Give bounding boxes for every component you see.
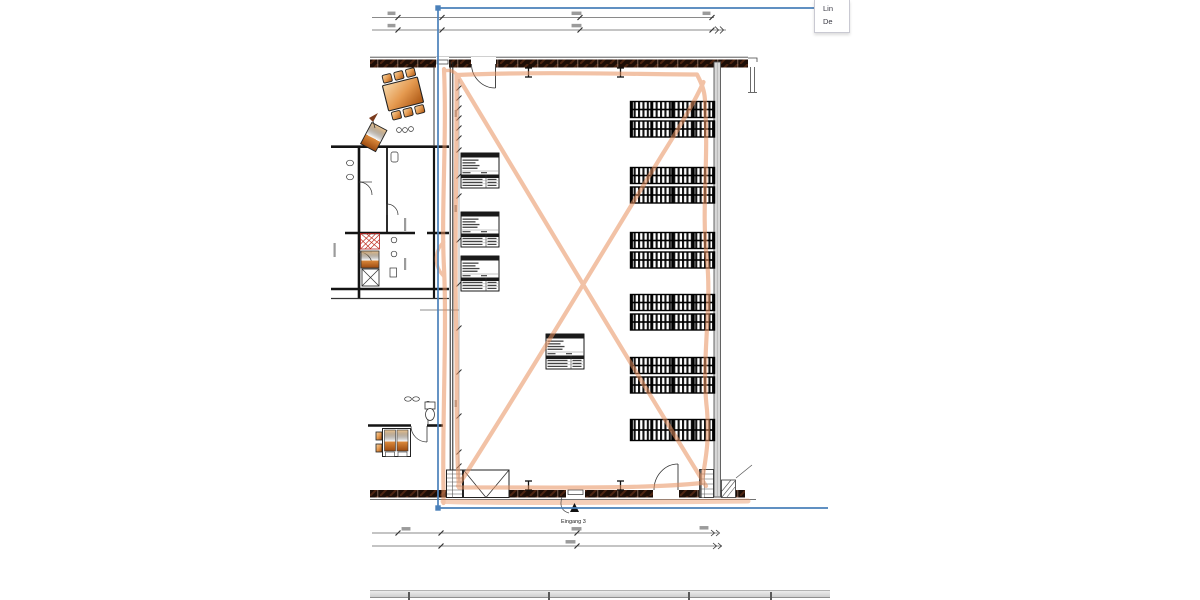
room-stamp: [461, 212, 499, 247]
counter-element: [361, 251, 379, 268]
table-header-bar[interactable]: [370, 590, 830, 598]
entrance-label: Eingang 3: [561, 519, 586, 525]
pallet-rack-group: [631, 233, 715, 269]
room-stamp: [461, 256, 499, 291]
context-panel-item[interactable]: Lin: [823, 2, 849, 15]
floorplan-canvas: Eingang 3: [0, 0, 1200, 600]
top-wall: [370, 60, 748, 68]
selection-handle-top[interactable]: [435, 5, 440, 10]
table-column-separator: [408, 592, 410, 600]
pallet-rack-group: [631, 358, 715, 394]
pallet-rack-group: [631, 295, 715, 331]
meeting-table: [380, 67, 426, 120]
column-marks: [525, 68, 624, 490]
room-stamp: [461, 153, 499, 188]
pallet-racks: [631, 102, 715, 441]
shaft-element: [362, 269, 379, 286]
app-viewport: Eingang 3 Lin De: [0, 0, 1200, 600]
table-column-separator: [770, 592, 772, 600]
context-panel-item[interactable]: De: [823, 15, 849, 28]
selection-handle-bottom[interactable]: [435, 505, 440, 510]
table-column-separator: [548, 592, 550, 600]
top-dimension-lines: [372, 12, 726, 34]
bottom-wall: [370, 490, 745, 498]
bottom-dimension-lines: [372, 527, 722, 550]
pallet-rack-group: [631, 102, 715, 138]
table-column-separator: [688, 592, 690, 600]
red-hatch-element: [361, 234, 380, 250]
context-panel[interactable]: Lin De: [814, 0, 850, 33]
loading-platform: [447, 470, 510, 498]
